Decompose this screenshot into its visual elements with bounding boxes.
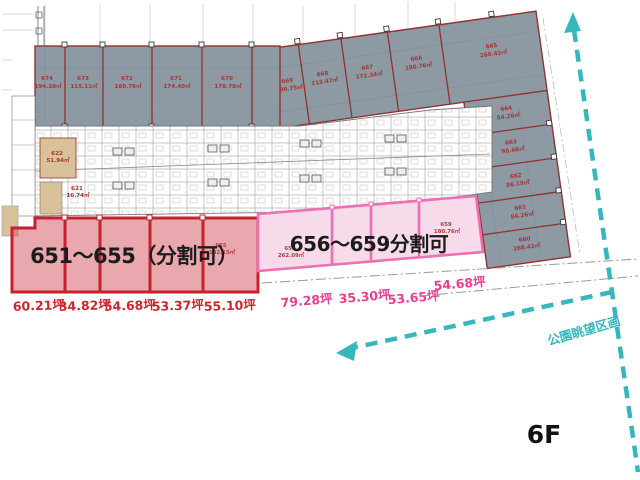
floor-plan-page: 669 190.75㎡ 668 113.47㎡ 667 172.34㎡ 666 … — [0, 0, 640, 480]
tsubo-label-653: 54.68坪 — [104, 297, 157, 314]
floor-plan-canvas: 669 190.75㎡ 668 113.47㎡ 667 172.34㎡ 666 … — [0, 0, 640, 480]
red-zone: 655 182.15㎡ 651～655（分割可） — [12, 215, 258, 292]
red-zone-title: 651～655（分割可） — [30, 244, 238, 268]
tsubo-label-655: 55.10坪 — [204, 297, 257, 314]
pink-zone-title: 656～659分割可 — [290, 232, 449, 256]
tsubo-label-654: 53.37坪 — [152, 297, 205, 314]
red-tsubo-labels: 60.21坪 34.82坪 54.68坪 53.37坪 55.10坪 — [13, 297, 257, 314]
left-strip-rooms — [12, 96, 35, 216]
upper-office-band: 674 194.28㎡ 673 115.11㎡ 672 180.76㎡ 671 … — [34, 42, 280, 129]
tan-room-621 — [40, 182, 62, 214]
floor-label: 6F — [527, 420, 561, 449]
